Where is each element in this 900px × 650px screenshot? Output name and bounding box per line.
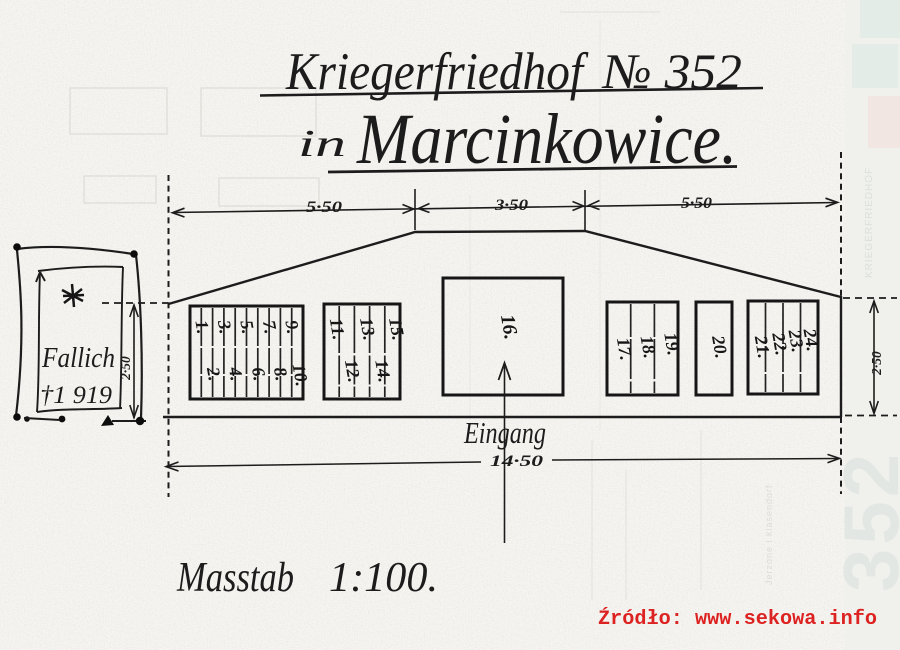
svg-text:11.: 11. <box>326 317 349 342</box>
svg-text:†1 919: †1 919 <box>40 382 113 409</box>
svg-text:2·50: 2·50 <box>118 356 133 381</box>
svg-text:20.: 20. <box>708 333 732 360</box>
svg-text:13.: 13. <box>356 316 380 342</box>
svg-text:5·50: 5·50 <box>681 195 712 212</box>
svg-text:18.: 18. <box>637 334 661 360</box>
svg-text:Eingang: Eingang <box>463 415 546 450</box>
svg-text:Źródło: www.sekowa.info: Źródło: www.sekowa.info <box>598 607 877 631</box>
svg-text:1:100.: 1:100. <box>329 555 438 601</box>
svg-text:17.: 17. <box>613 336 637 362</box>
svg-text:24.: 24. <box>799 326 823 353</box>
svg-text:352: 352 <box>827 450 900 592</box>
svg-text:2·50: 2·50 <box>869 351 884 376</box>
svg-text:5·50: 5·50 <box>306 199 342 216</box>
svg-text:Masstab: Masstab <box>176 555 294 601</box>
svg-text:KRIEGERFRIEDHOF: KRIEGERFRIEDHOF <box>864 167 875 278</box>
svg-text:15.: 15. <box>385 316 409 342</box>
svg-text:10.: 10. <box>289 362 313 388</box>
svg-text:19.: 19. <box>660 331 684 357</box>
svg-text:Jerzone i klasendorf: Jerzone i klasendorf <box>764 484 774 585</box>
svg-text:3·50: 3·50 <box>494 197 528 214</box>
svg-text:16.: 16. <box>496 313 522 341</box>
svg-text:14·50: 14·50 <box>490 453 543 470</box>
svg-text:14.: 14. <box>371 358 395 384</box>
svg-text:Fallich: Fallich <box>41 342 115 374</box>
svg-text:in: in <box>298 123 346 165</box>
svg-text:12.: 12. <box>341 358 365 384</box>
